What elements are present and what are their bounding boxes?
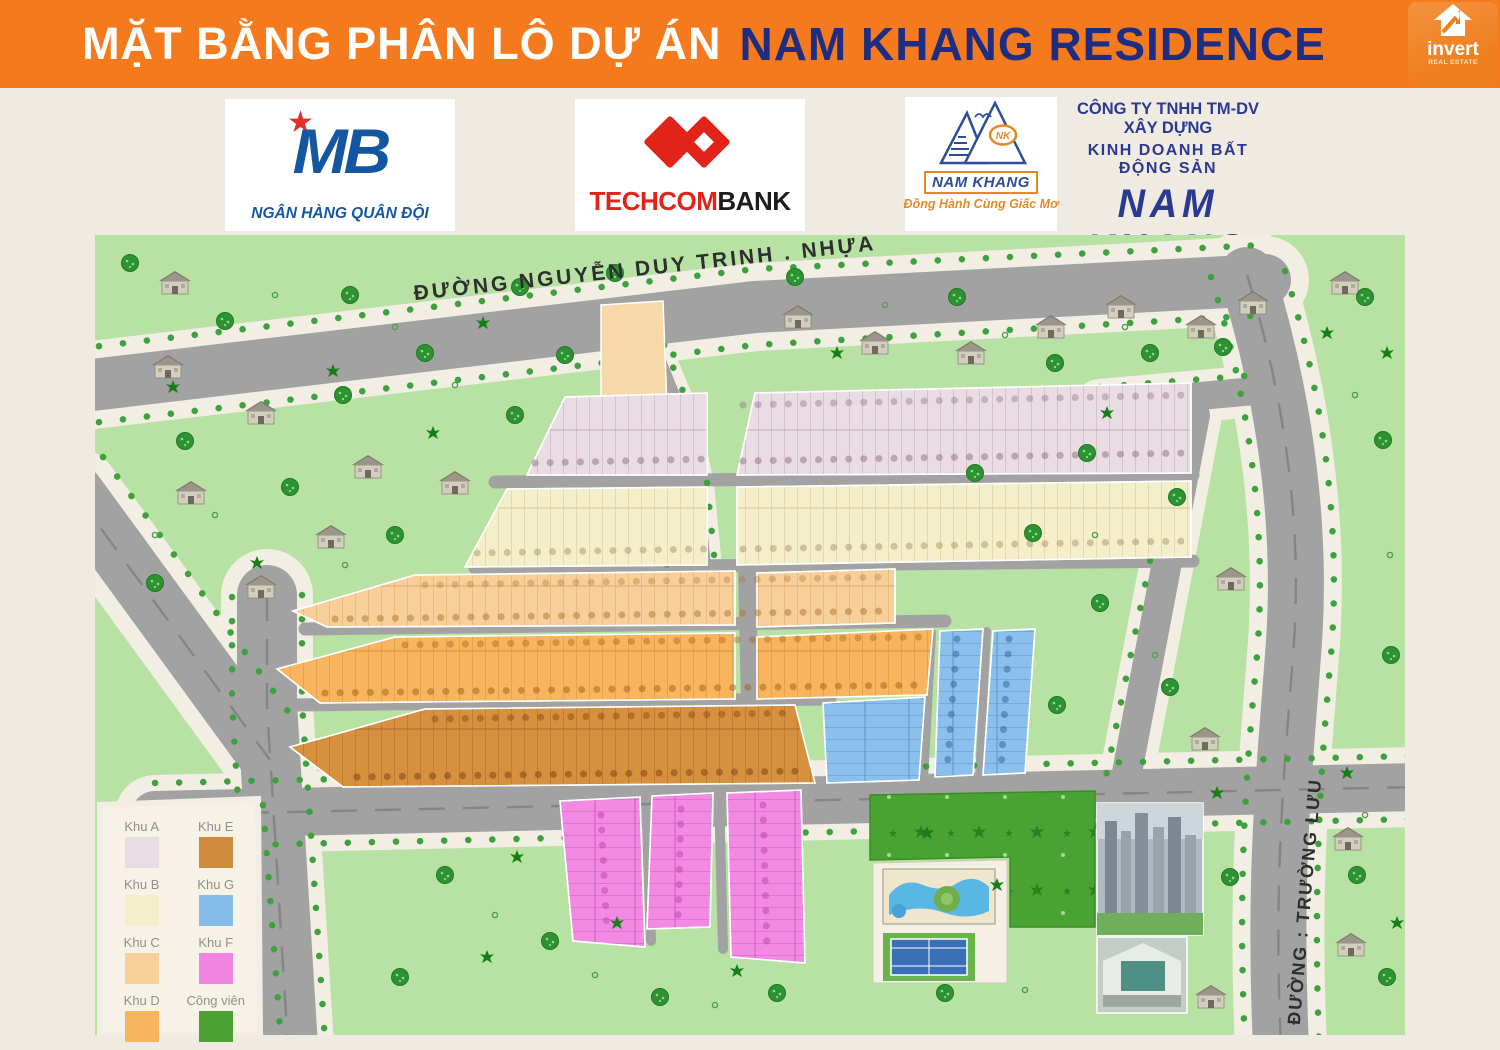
techcombank-logo: TECHCOMBANK xyxy=(575,99,805,231)
legend-item-khu-f: Khu F xyxy=(186,935,245,984)
amenity-area xyxy=(873,860,1007,983)
page-title: MẶT BẰNG PHÂN LÔ DỰ ÁN NAM KHANG RESIDEN… xyxy=(0,0,1408,88)
legend-swatch-khu-a xyxy=(125,837,159,868)
block-lot-small xyxy=(601,301,667,410)
render-photos xyxy=(1097,803,1203,1013)
legend-item-khu-c: Khu C xyxy=(117,935,166,984)
mb-tagline: NGÂN HÀNG QUÂN ĐỘI xyxy=(225,205,455,223)
techcombank-diamond-icon xyxy=(645,113,737,175)
legend-swatch-khu-d xyxy=(125,1011,159,1042)
svg-text:NK: NK xyxy=(996,131,1011,142)
namkhang-mountain-icon: NK xyxy=(933,97,1029,169)
legend-item-khu-d: Khu D xyxy=(117,993,166,1042)
legend-item-cong-vien: Công viên xyxy=(186,993,245,1042)
legend-item-khu-a: Khu A xyxy=(117,819,166,868)
namkhang-logo-card: NK NAM KHANG Đồng Hành Cùng Giấc Mơ xyxy=(905,97,1057,231)
invert-name: invert xyxy=(1427,41,1479,59)
site-plan-canvas xyxy=(95,235,1405,1035)
invert-sub: REAL ESTATE xyxy=(1428,59,1478,66)
techcombank-wordmark: TECHCOMBANK xyxy=(575,186,805,217)
namkhang-tagline: Đồng Hành Cùng Giấc Mơ xyxy=(904,197,1059,211)
invert-house-icon xyxy=(1430,2,1476,40)
title-project-name: NAM KHANG RESIDENCE xyxy=(739,17,1325,71)
legend-swatch-khu-g xyxy=(199,895,233,926)
legend-swatch-khu-c xyxy=(125,953,159,984)
namkhang-wordmark: NAM KHANG xyxy=(924,171,1038,194)
legend-swatch-khu-b xyxy=(125,895,159,926)
mb-letters: MB xyxy=(225,115,455,187)
legend-swatch-cong-vien xyxy=(199,1011,233,1042)
invert-logo: invert REAL ESTATE xyxy=(1408,2,1498,86)
company-line2: KINH DOANH BẤT ĐỘNG SẢN xyxy=(1062,142,1274,178)
poster-page: MẶT BẰNG PHÂN LÔ DỰ ÁN NAM KHANG RESIDEN… xyxy=(0,0,1500,1050)
map-legend: Khu A Khu E Khu B Khu G Khu C Khu F xyxy=(117,819,245,1042)
header-bar: MẶT BẰNG PHÂN LÔ DỰ ÁN NAM KHANG RESIDEN… xyxy=(0,0,1500,88)
legend-swatch-khu-e xyxy=(199,837,233,868)
legend-item-khu-b: Khu B xyxy=(117,877,166,926)
legend-swatch-khu-f xyxy=(199,953,233,984)
legend-item-khu-e: Khu E xyxy=(186,819,245,868)
mb-bank-logo: ★ MB NGÂN HÀNG QUÂN ĐỘI xyxy=(225,99,455,231)
title-white: MẶT BẰNG PHÂN LÔ DỰ ÁN xyxy=(82,18,721,70)
company-line1: CÔNG TY TNHH TM-DV XÂY DỰNG xyxy=(1062,100,1274,138)
legend-item-khu-g: Khu G xyxy=(186,877,245,926)
site-plan-map: ĐƯỜNG NGUYỄN DUY TRINH . NHỰA ĐƯỜNG : TR… xyxy=(95,235,1405,1035)
